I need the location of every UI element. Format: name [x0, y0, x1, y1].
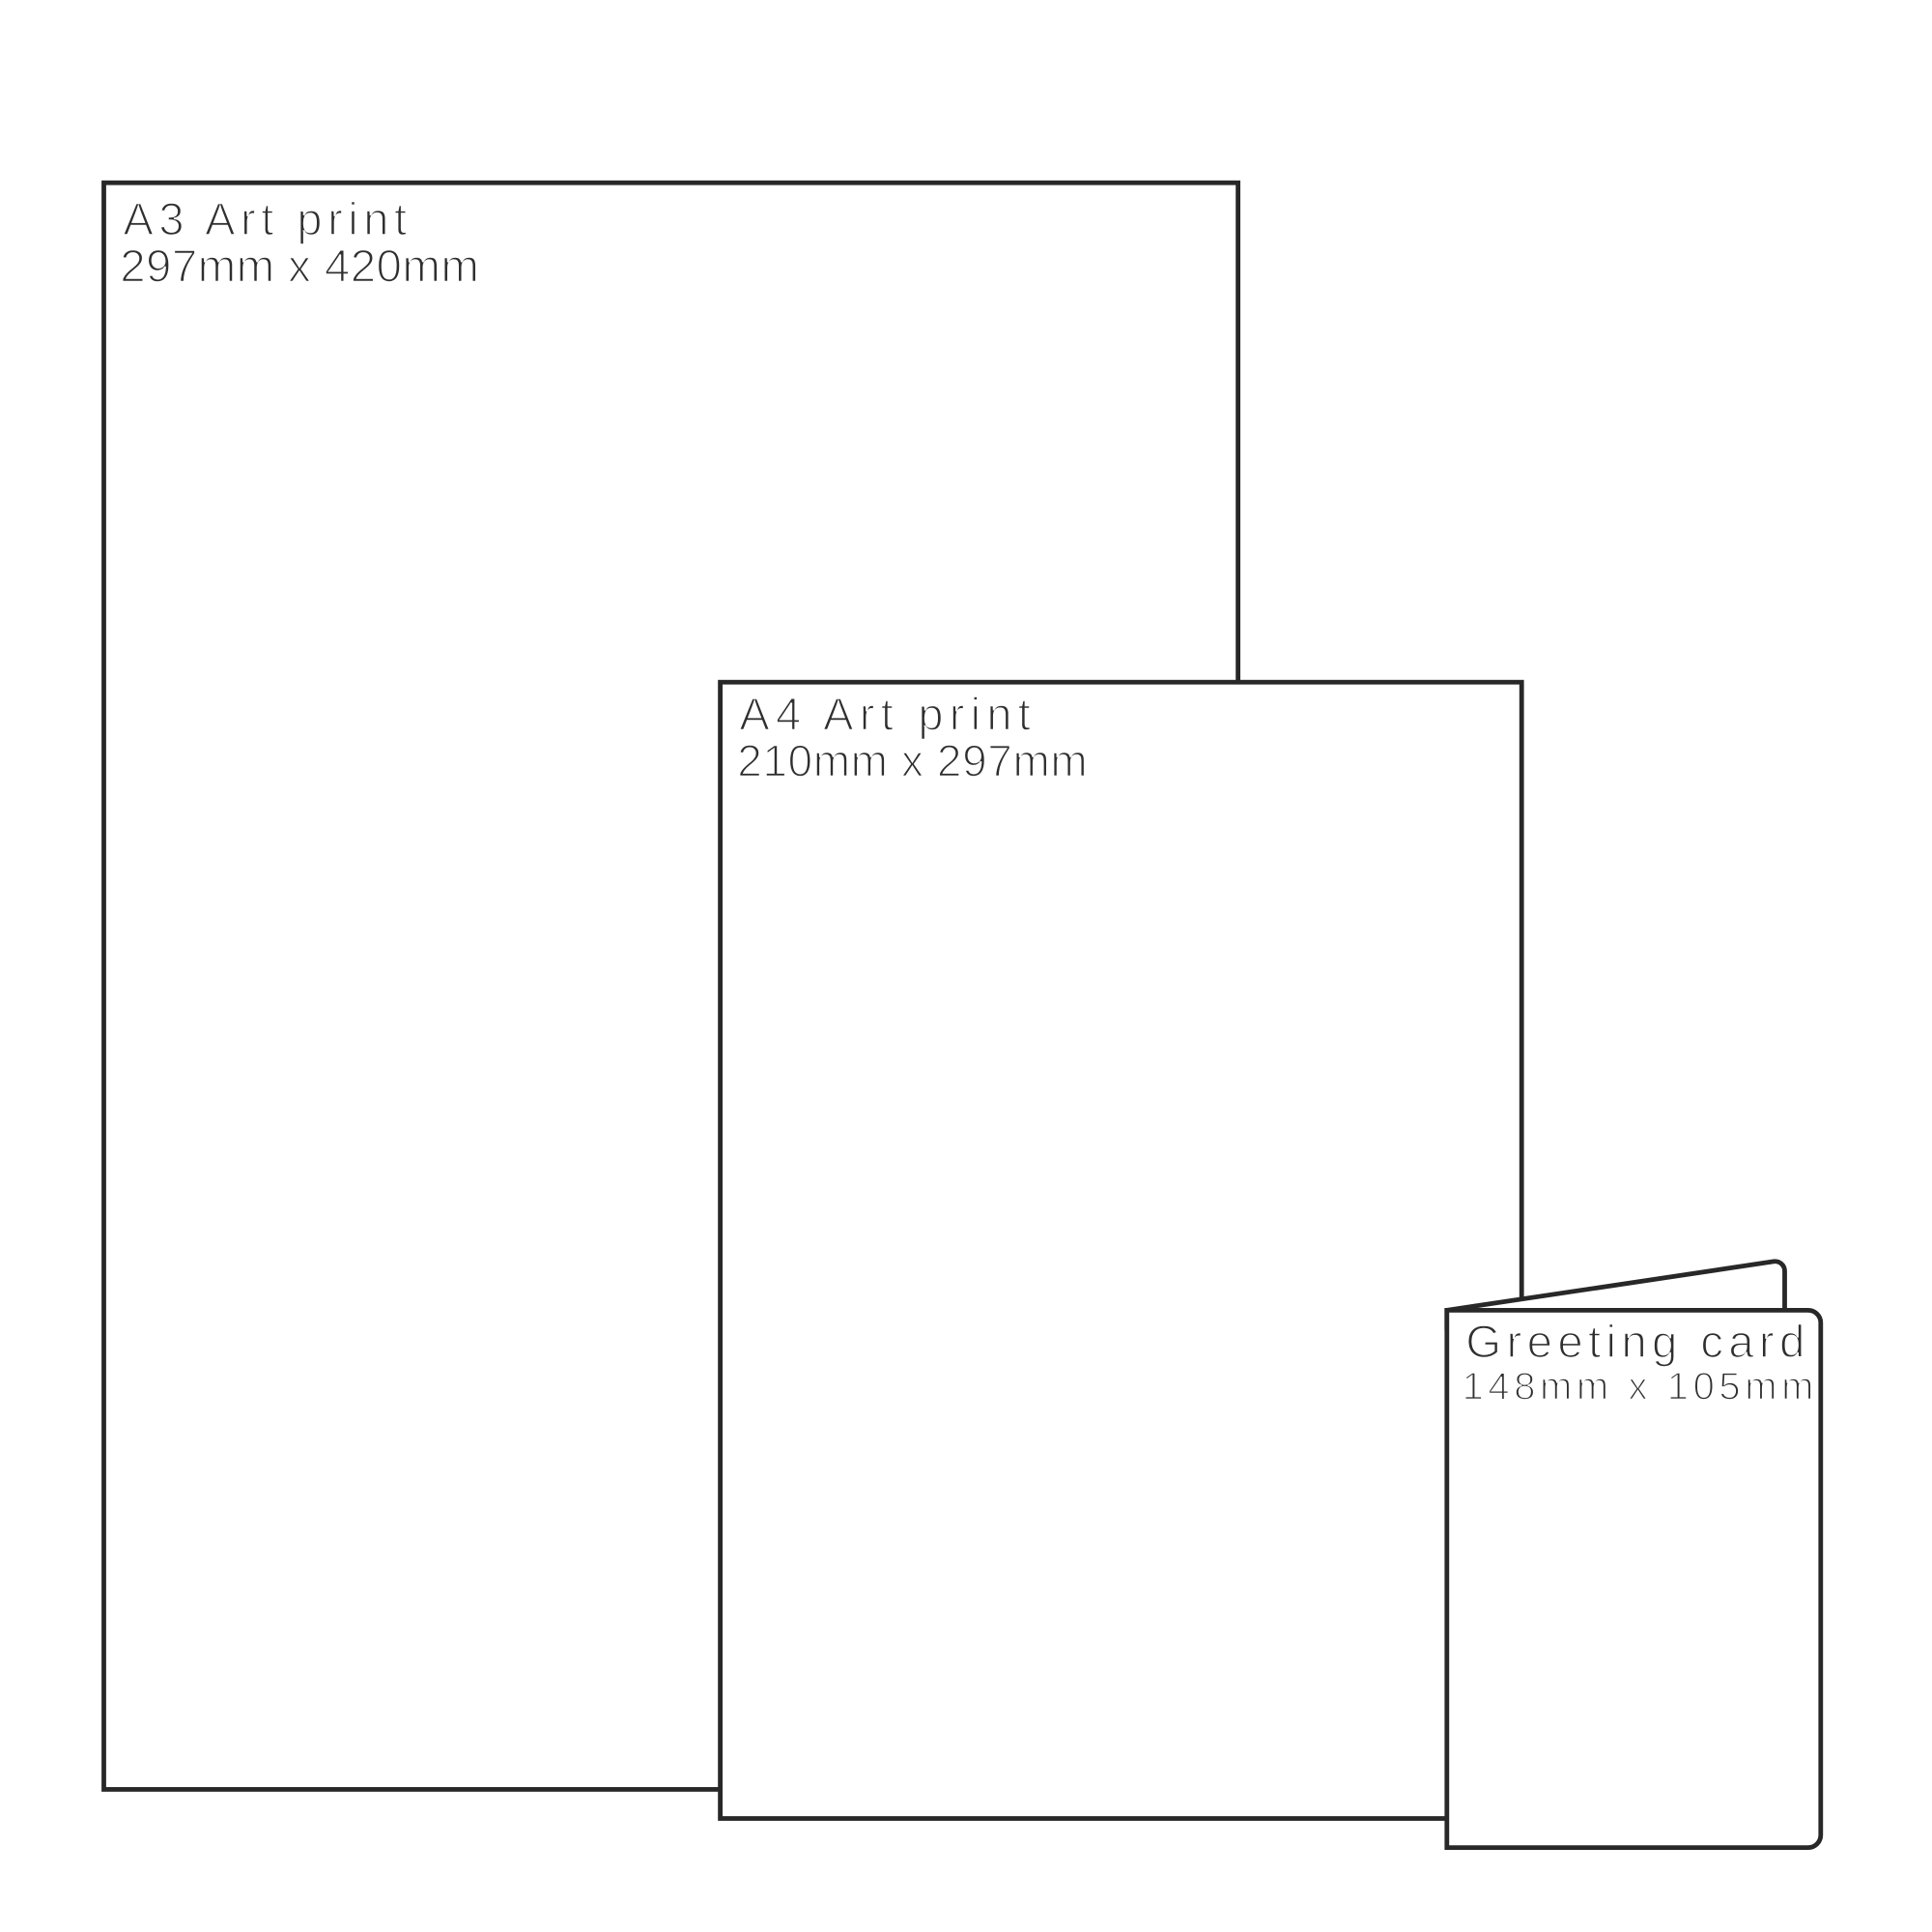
svg-text:210mm x 297mm: 210mm x 297mm: [737, 736, 1088, 786]
svg-text:148mm x 105mm: 148mm x 105mm: [1463, 1366, 1818, 1408]
svg-text:Greeting card: Greeting card: [1465, 1317, 1809, 1368]
svg-text:A4 Art print: A4 Art print: [739, 689, 1037, 740]
svg-text:A3 Art print: A3 Art print: [124, 193, 412, 244]
svg-text:297mm x 420mm: 297mm x 420mm: [120, 241, 479, 292]
